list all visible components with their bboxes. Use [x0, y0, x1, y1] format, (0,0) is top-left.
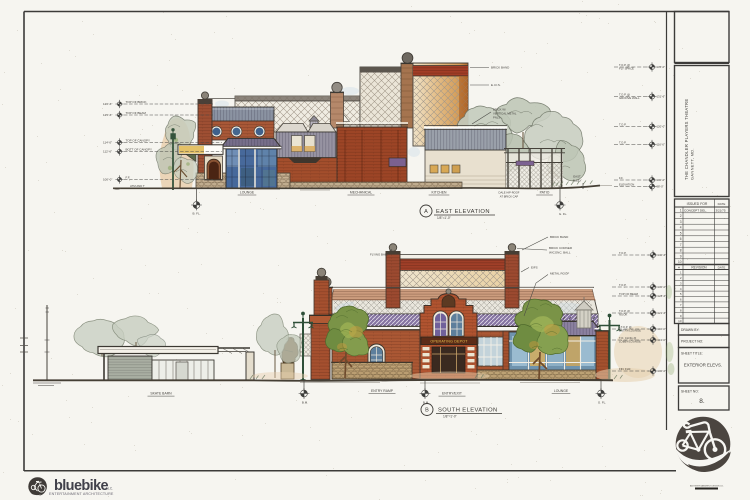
svg-text:LOUNGE: LOUNGE	[240, 191, 255, 195]
svg-text:10: 10	[678, 319, 682, 323]
svg-text:, LLC.: , LLC.	[105, 487, 114, 491]
svg-text:3/21/75: 3/21/75	[716, 209, 726, 213]
svg-text:BRICK CORNER: BRICK CORNER	[549, 246, 573, 250]
svg-text:8.: 8.	[699, 398, 705, 405]
svg-text:GANNETT, MD.: GANNETT, MD.	[690, 148, 695, 180]
svg-text:6: 6	[680, 237, 682, 241]
svg-text:112'-6": 112'-6"	[103, 150, 112, 154]
svg-text:SHEET NO:: SHEET NO:	[681, 390, 699, 394]
svg-text:BOTT OF CANOPY: BOTT OF CANOPY	[126, 148, 152, 152]
svg-text:EAST ELEVATION: EAST ELEVATION	[436, 209, 490, 215]
svg-text:140'-6": 140'-6"	[658, 253, 667, 257]
svg-text:126'-6": 126'-6"	[103, 102, 112, 106]
svg-text:3: 3	[680, 220, 682, 224]
svg-text:128'-6": 128'-6"	[658, 294, 667, 298]
svg-text:4: 4	[680, 226, 682, 230]
svg-text:100'-0": 100'-0"	[657, 178, 666, 182]
svg-text:SHEET TITLE:: SHEET TITLE:	[681, 352, 703, 356]
svg-text:2: 2	[680, 214, 682, 218]
svg-text:10: 10	[678, 260, 682, 264]
svg-text:ENTERTAINMENT ARCHITECTURE: ENTERTAINMENT ARCHITECTURE	[49, 492, 114, 496]
svg-text:130'-0": 130'-0"	[658, 285, 667, 289]
svg-text:116'-0": 116'-0"	[657, 143, 665, 147]
svg-text:1/8"=1'-0": 1/8"=1'-0"	[443, 415, 457, 419]
svg-text:T.O.P.: T.O.P.	[619, 122, 627, 126]
svg-text:A: A	[424, 209, 428, 215]
svg-text:G. FL.: G. FL.	[598, 401, 607, 405]
svg-text:AT BRICK CAP: AT BRICK CAP	[500, 195, 519, 199]
svg-text:T.O.P.: T.O.P.	[619, 251, 627, 255]
svg-text:ATM AND T: ATM AND T	[130, 184, 145, 188]
svg-text:5: 5	[680, 231, 682, 235]
svg-text:KITCHEN: KITCHEN	[432, 191, 447, 195]
svg-text:LOUNGE: LOUNGE	[554, 389, 569, 393]
svg-text:ENTRY/LOUNGE: ENTRY/LOUNGE	[619, 329, 641, 333]
svg-text:116'-0": 116'-0"	[658, 327, 666, 331]
svg-text:DALE HIP-ROOF: DALE HIP-ROOF	[499, 191, 520, 195]
svg-text:AN ENTERTAINMENT DESIGN CO.: AN ENTERTAINMENT DESIGN CO.	[690, 485, 724, 488]
svg-text:1/8"=1'-0": 1/8"=1'-0"	[437, 216, 451, 220]
svg-text:SOUTH ELEVATION: SOUTH ELEVATION	[438, 408, 498, 414]
svg-text:EIFS: EIFS	[531, 266, 538, 270]
svg-text:PNLS: PNLS	[493, 116, 500, 120]
svg-text:CONCEPT DEL.: CONCEPT DEL.	[684, 209, 707, 213]
svg-text:DRAWN BY:: DRAWN BY:	[681, 328, 699, 332]
svg-text:TOP OF BEAM: TOP OF BEAM	[126, 111, 147, 115]
svg-text:ALLEY: ALLEY	[573, 179, 582, 183]
svg-text:100'-0": 100'-0"	[103, 178, 112, 182]
svg-text:8: 8	[680, 249, 682, 253]
svg-text:FLYING BALL: FLYING BALL	[370, 253, 388, 257]
svg-text:113'-6": 113'-6"	[658, 338, 666, 342]
svg-text:9: 9	[680, 254, 682, 258]
svg-text:SKATE BARN: SKATE BARN	[150, 392, 172, 396]
svg-text:T.O.P.: T.O.P.	[619, 283, 627, 287]
svg-text:MECHANICAL: MECHANICAL	[350, 191, 372, 195]
svg-text:ENTRY RAMP: ENTRY RAMP	[371, 389, 394, 393]
svg-text:114'-0": 114'-0"	[103, 141, 112, 145]
svg-text:121'-6": 121'-6"	[658, 311, 667, 315]
svg-text:TOP OF CANOPY: TOP OF CANOPY	[126, 139, 151, 143]
svg-text:ELEVATION: ELEVATION	[619, 182, 634, 186]
svg-text:TOP OF BEAM: TOP OF BEAM	[619, 292, 639, 296]
svg-text:120'-0": 120'-0"	[657, 125, 666, 129]
svg-text:DATE: DATE	[718, 202, 726, 206]
svg-text:BRICK BAND: BRICK BAND	[550, 235, 569, 239]
svg-text:GROOVE WALL: GROOVE WALL	[619, 96, 640, 100]
svg-text:NOOK: NOOK	[619, 313, 627, 317]
svg-text:FLY SPACE: FLY SPACE	[619, 66, 634, 70]
svg-text:ISSUED FOR: ISSUED FOR	[687, 202, 708, 206]
svg-text:METAL ROOF: METAL ROOF	[550, 272, 569, 276]
svg-text:125'-6": 125'-6"	[103, 113, 112, 117]
svg-text:W/CONC. BALL: W/CONC. BALL	[549, 251, 571, 255]
svg-text:T.O.P.: T.O.P.	[619, 140, 627, 144]
svg-text:E.I.F.S.: E.I.F.S.	[491, 83, 501, 87]
svg-text:98'-0": 98'-0"	[657, 185, 664, 189]
svg-text:BRICK BAND: BRICK BAND	[491, 66, 510, 70]
svg-text:LOBBY/LOUNGE: LOBBY/LOUNGE	[619, 340, 641, 344]
svg-text:100'-0": 100'-0"	[658, 369, 667, 373]
svg-text:THE CHANDLER PLAYERS THEATRE: THE CHANDLER PLAYERS THEATRE	[684, 99, 689, 180]
svg-text:B.M.: B.M.	[302, 401, 308, 405]
svg-text:131'-6": 131'-6"	[657, 95, 666, 99]
svg-text:B: B	[425, 408, 429, 414]
svg-text:PROJECT NO:: PROJECT NO:	[681, 340, 703, 344]
svg-text:PATIO: PATIO	[540, 191, 550, 195]
svg-text:FIN. FLR.: FIN. FLR.	[619, 367, 631, 371]
svg-text:DATE: DATE	[718, 265, 726, 269]
svg-text:G. FL.: G. FL.	[559, 212, 568, 216]
svg-text:ENTRY/EXIT: ENTRY/EXIT	[442, 392, 462, 396]
svg-text:7: 7	[680, 243, 682, 247]
svg-text:OPERATING DEPOT: OPERATING DEPOT	[430, 340, 468, 344]
svg-text:135'-0": 135'-0"	[657, 65, 666, 69]
svg-text:TOP OF BRICK: TOP OF BRICK	[126, 100, 147, 104]
svg-text:B. FL.: B. FL.	[192, 212, 200, 216]
svg-text:EXTERIOR ELEVS.: EXTERIOR ELEVS.	[684, 363, 722, 368]
svg-text:REVISION: REVISION	[691, 265, 707, 269]
svg-text:F.F.: F.F.	[126, 176, 131, 180]
svg-text:F.F.: F.F.	[619, 176, 624, 180]
svg-text:1: 1	[680, 208, 682, 212]
